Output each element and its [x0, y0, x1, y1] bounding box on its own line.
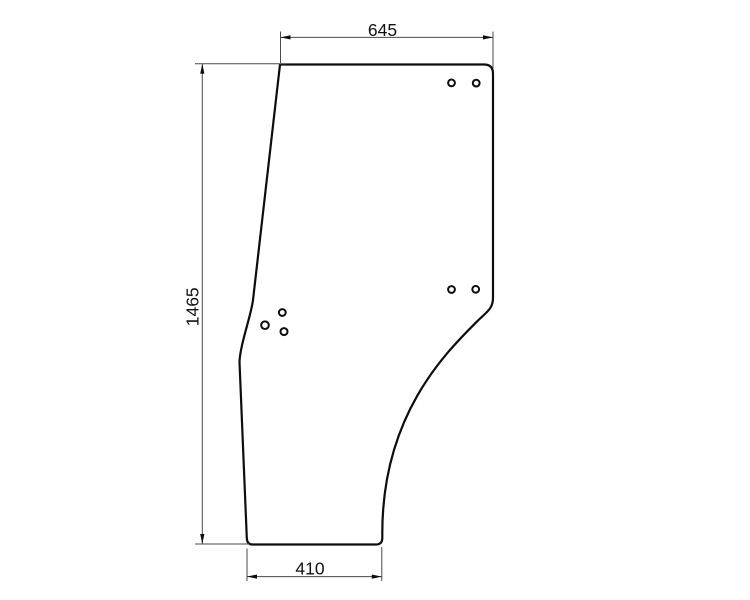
svg-text:1465: 1465 — [183, 287, 203, 326]
svg-text:645: 645 — [368, 20, 397, 40]
svg-text:410: 410 — [295, 558, 324, 578]
